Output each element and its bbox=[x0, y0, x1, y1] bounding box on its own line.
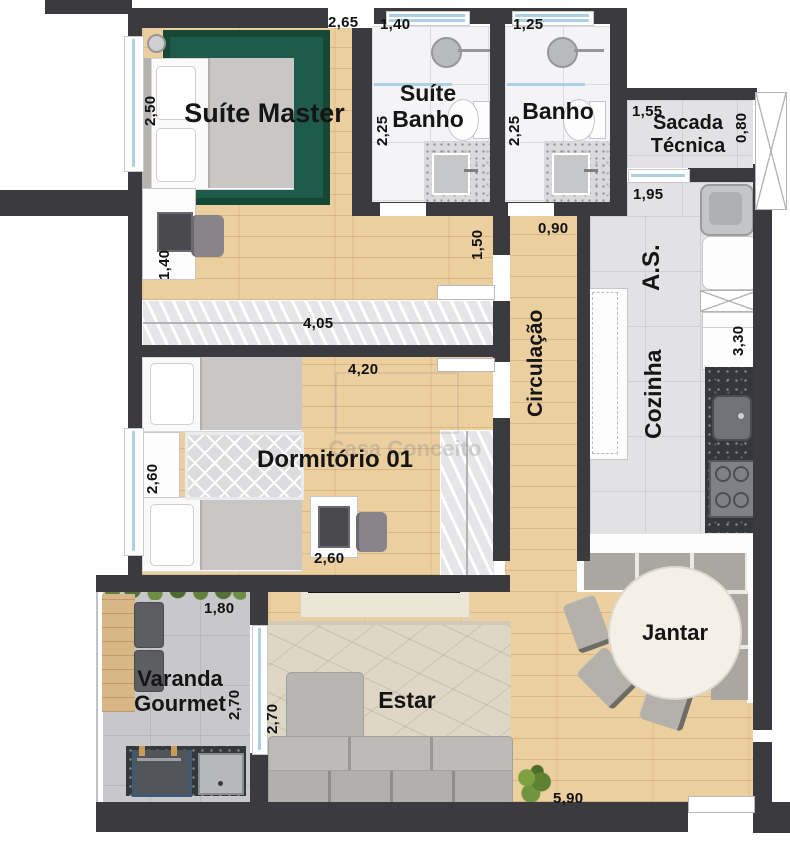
dim-dormitorio-width: 4,20 bbox=[348, 361, 378, 378]
grill-grate bbox=[137, 758, 181, 761]
cooktop bbox=[709, 460, 755, 518]
vanity-tap bbox=[584, 169, 598, 172]
dim-dormitorio-desk: 2,60 bbox=[314, 550, 344, 567]
room-label-sacada-tecnica: Sacada Técnica bbox=[627, 112, 749, 158]
shower-head-icon bbox=[547, 37, 578, 68]
varanda-chair bbox=[134, 602, 164, 648]
plant bbox=[512, 763, 554, 805]
wall bbox=[490, 8, 505, 216]
sofa-chaise bbox=[286, 672, 364, 744]
dim-suite-hall: 1,50 bbox=[469, 218, 486, 260]
grill-handle bbox=[171, 746, 177, 756]
dim-circulacao-width: 0,90 bbox=[538, 220, 568, 237]
dorm-pillow bbox=[150, 363, 194, 425]
burner bbox=[715, 492, 731, 508]
dorm-bed-blanket bbox=[200, 497, 302, 570]
wall bbox=[610, 8, 627, 216]
room-label-dormitorio: Dormitório 01 bbox=[250, 446, 420, 474]
shower-arm bbox=[574, 49, 604, 52]
door-sacada-sliding bbox=[628, 169, 690, 183]
vanity-sink bbox=[432, 153, 470, 195]
door-leaf-dormitorio bbox=[437, 358, 495, 372]
dim-suite-master-depth: 2,50 bbox=[142, 78, 159, 126]
grill bbox=[132, 750, 192, 797]
door-opening-suite-banho bbox=[380, 203, 426, 216]
wall bbox=[0, 190, 130, 216]
dim-estar-depth: 2,70 bbox=[264, 688, 281, 734]
door-leaf-entry bbox=[688, 796, 755, 813]
wall bbox=[688, 168, 757, 182]
watermark-logo bbox=[335, 372, 459, 434]
window-glass bbox=[132, 39, 135, 167]
wall bbox=[45, 0, 132, 14]
door-opening-dormitorio bbox=[493, 362, 510, 418]
vanity-tap bbox=[464, 169, 478, 172]
cabinet bbox=[700, 290, 758, 312]
washing-machine bbox=[702, 236, 758, 290]
burner bbox=[715, 466, 731, 482]
dim-banho-width: 1,25 bbox=[513, 16, 543, 33]
dim-closet-width: 4,05 bbox=[303, 315, 333, 332]
burner bbox=[733, 466, 749, 482]
suite-desk-chair bbox=[191, 215, 224, 257]
dim-suite-banho-width: 1,40 bbox=[380, 16, 410, 33]
wall bbox=[753, 742, 772, 802]
shower-glass bbox=[507, 83, 585, 86]
burner bbox=[733, 492, 749, 508]
suite-pillow bbox=[156, 128, 196, 182]
dim-area-servico-width: 1,95 bbox=[633, 186, 663, 203]
room-label-area-servico: A.S. bbox=[638, 224, 666, 312]
shower-head-icon bbox=[431, 37, 462, 68]
kitchen-counter-left bbox=[588, 288, 628, 460]
dim-varanda-width: 1,80 bbox=[204, 600, 234, 617]
room-label-circulacao: Circulação bbox=[524, 298, 548, 428]
room-label-banho: Banho bbox=[508, 98, 608, 124]
wall bbox=[250, 753, 268, 805]
wall bbox=[250, 575, 268, 625]
window-sacada bbox=[755, 92, 787, 210]
sprinkler-icon bbox=[147, 34, 166, 53]
window-glass bbox=[132, 431, 135, 551]
varanda-tap bbox=[218, 781, 223, 786]
kitchen-sink bbox=[712, 395, 752, 441]
room-label-cozinha: Cozinha bbox=[640, 345, 666, 443]
upper-cabinet bbox=[592, 292, 618, 454]
wall bbox=[577, 216, 590, 561]
door-glass bbox=[631, 174, 685, 177]
dim-social-width: 5,90 bbox=[553, 790, 583, 807]
room-label-jantar: Jantar bbox=[642, 620, 708, 645]
room-label-varanda-gourmet: Varanda Gourmet bbox=[116, 666, 244, 717]
bench-base bbox=[582, 533, 759, 555]
door-opening-banho bbox=[508, 203, 554, 216]
window-dormitorio bbox=[124, 428, 144, 556]
wall bbox=[753, 164, 772, 730]
room-label-suite-banho: Suíte Banho bbox=[376, 80, 480, 133]
dorm-pillow bbox=[150, 504, 194, 566]
dorm-laptop bbox=[318, 506, 350, 548]
wall bbox=[96, 802, 772, 832]
grill-handle bbox=[139, 746, 145, 756]
vanity-sink bbox=[552, 153, 590, 195]
wall bbox=[128, 8, 328, 28]
dim-cozinha-depth: 3,30 bbox=[730, 312, 747, 356]
dorm-desk-chair bbox=[356, 512, 387, 552]
sofa-seats bbox=[268, 736, 513, 772]
door-leaf-suite bbox=[437, 285, 495, 300]
dorm-bed-blanket bbox=[200, 357, 302, 430]
floor-plan: Jantar Casa Conceito bbox=[0, 0, 790, 843]
wall bbox=[128, 192, 142, 428]
wall bbox=[352, 28, 372, 216]
wall bbox=[128, 345, 510, 357]
window-suite bbox=[124, 36, 144, 172]
shower-arm bbox=[458, 49, 490, 52]
dim-suite-desk: 1,40 bbox=[156, 234, 173, 280]
varanda-sink bbox=[198, 753, 244, 795]
dim-suite-master-width: 2,65 bbox=[328, 14, 358, 31]
dining-table: Jantar bbox=[608, 566, 742, 700]
sofa-backrest bbox=[268, 770, 513, 806]
dim-dormitorio-depth: 2,60 bbox=[144, 446, 161, 494]
room-label-suite-master: Suíte Master bbox=[182, 98, 347, 129]
laundry-tub-basin bbox=[709, 192, 742, 225]
door-opening-suite bbox=[493, 255, 510, 301]
wall bbox=[96, 575, 510, 592]
kitchen-tap bbox=[738, 413, 744, 419]
door-glass bbox=[258, 628, 261, 750]
room-label-estar: Estar bbox=[362, 687, 452, 713]
